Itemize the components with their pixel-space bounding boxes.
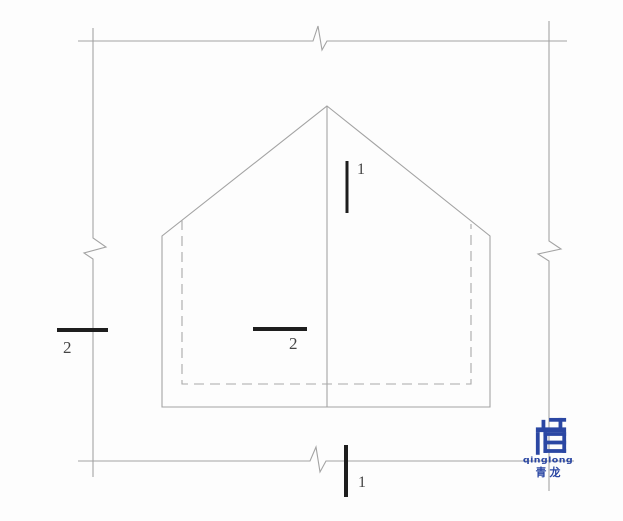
- logo-chinese-text: 青龙: [533, 467, 564, 479]
- qinglong-logo: qinglong 青龙: [512, 413, 584, 480]
- section-label-2-left: 2: [63, 339, 72, 356]
- drawing-canvas: 1 2 2 1 qinglong 青龙: [0, 0, 623, 521]
- logo-latin-text: qinglong: [523, 457, 573, 466]
- qinglong-logo-icon: [534, 413, 568, 455]
- section-label-2-center: 2: [289, 335, 298, 352]
- roof-outline: [162, 106, 490, 407]
- border-top-line: [78, 26, 567, 50]
- section-label-1-bottom: 1: [358, 475, 366, 491]
- border-left-line: [84, 28, 106, 477]
- section-label-1-top: 1: [357, 162, 365, 178]
- border-bottom-line: [78, 447, 574, 472]
